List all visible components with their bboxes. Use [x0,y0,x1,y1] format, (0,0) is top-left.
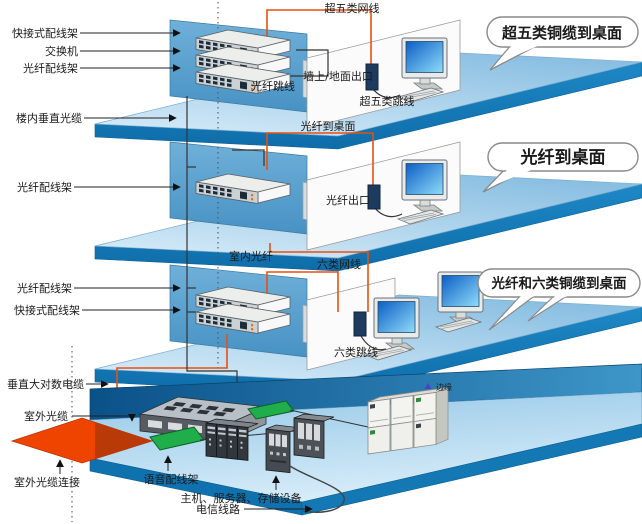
f2-bubble-label: 光纤到桌面 [520,147,606,168]
diagram-canvas: 快接式配线架 交换机 光纤配线架 楼内垂直光缆 超五类网线 墙上/地面出口 超五… [0,0,642,524]
storage-cabinets [368,387,448,454]
network-cabling-diagram: 快接式配线架 交换机 光纤配线架 楼内垂直光缆 超五类网线 墙上/地面出口 超五… [0,0,642,524]
f1-fiber-panel-label: 光纤配线架 [23,61,78,75]
f1-cable-label: 超五类网线 [325,1,380,15]
f3-quick-panel-label: 快接式配线架 [14,303,80,317]
outdoor-fiber-conn-label: 室外光缆连接 [14,475,80,489]
f1-outlet-label: 墙上/地面出口 [303,69,373,83]
f3-bubble-label: 光纤和六类铜缆到桌面 [491,275,627,292]
riser-fiber-label: 楼内垂直光缆 [16,111,82,125]
f1-patch-label: 超五类跳线 [360,94,415,108]
basement-riser-copper-label: 垂直大对数电缆 [7,377,84,391]
f1-bubble-label: 超五类铜缆到桌面 [501,24,622,42]
f3-cable-label: 六类网线 [317,257,361,271]
f1-switch-label: 交换机 [45,44,78,58]
voice-panel-label: 语音配线架 [144,472,199,486]
f3-patch-label: 六类跳线 [334,345,378,359]
telecom-line-label: 电信线路 [196,502,240,516]
outdoor-fiber-label: 室外光缆 [24,409,68,423]
watermark-text: 边缘 [436,382,452,392]
f1-jumper-label: 光纤跳线 [251,79,295,93]
f2-fiber-panel-label: 光纤配线架 [17,180,72,194]
equipment-room [12,364,642,515]
f1-quick-panel-label: 快接式配线架 [12,26,78,40]
f3-fiber-panel-label: 光纤配线架 [17,281,72,295]
f2-cable-label: 光纤到桌面 [301,119,356,133]
f2-outlet-label: 光纤出口 [326,193,370,207]
f3-indoor-fiber-label: 室内光纤 [229,249,273,263]
f3-wall-outlet [354,312,366,336]
